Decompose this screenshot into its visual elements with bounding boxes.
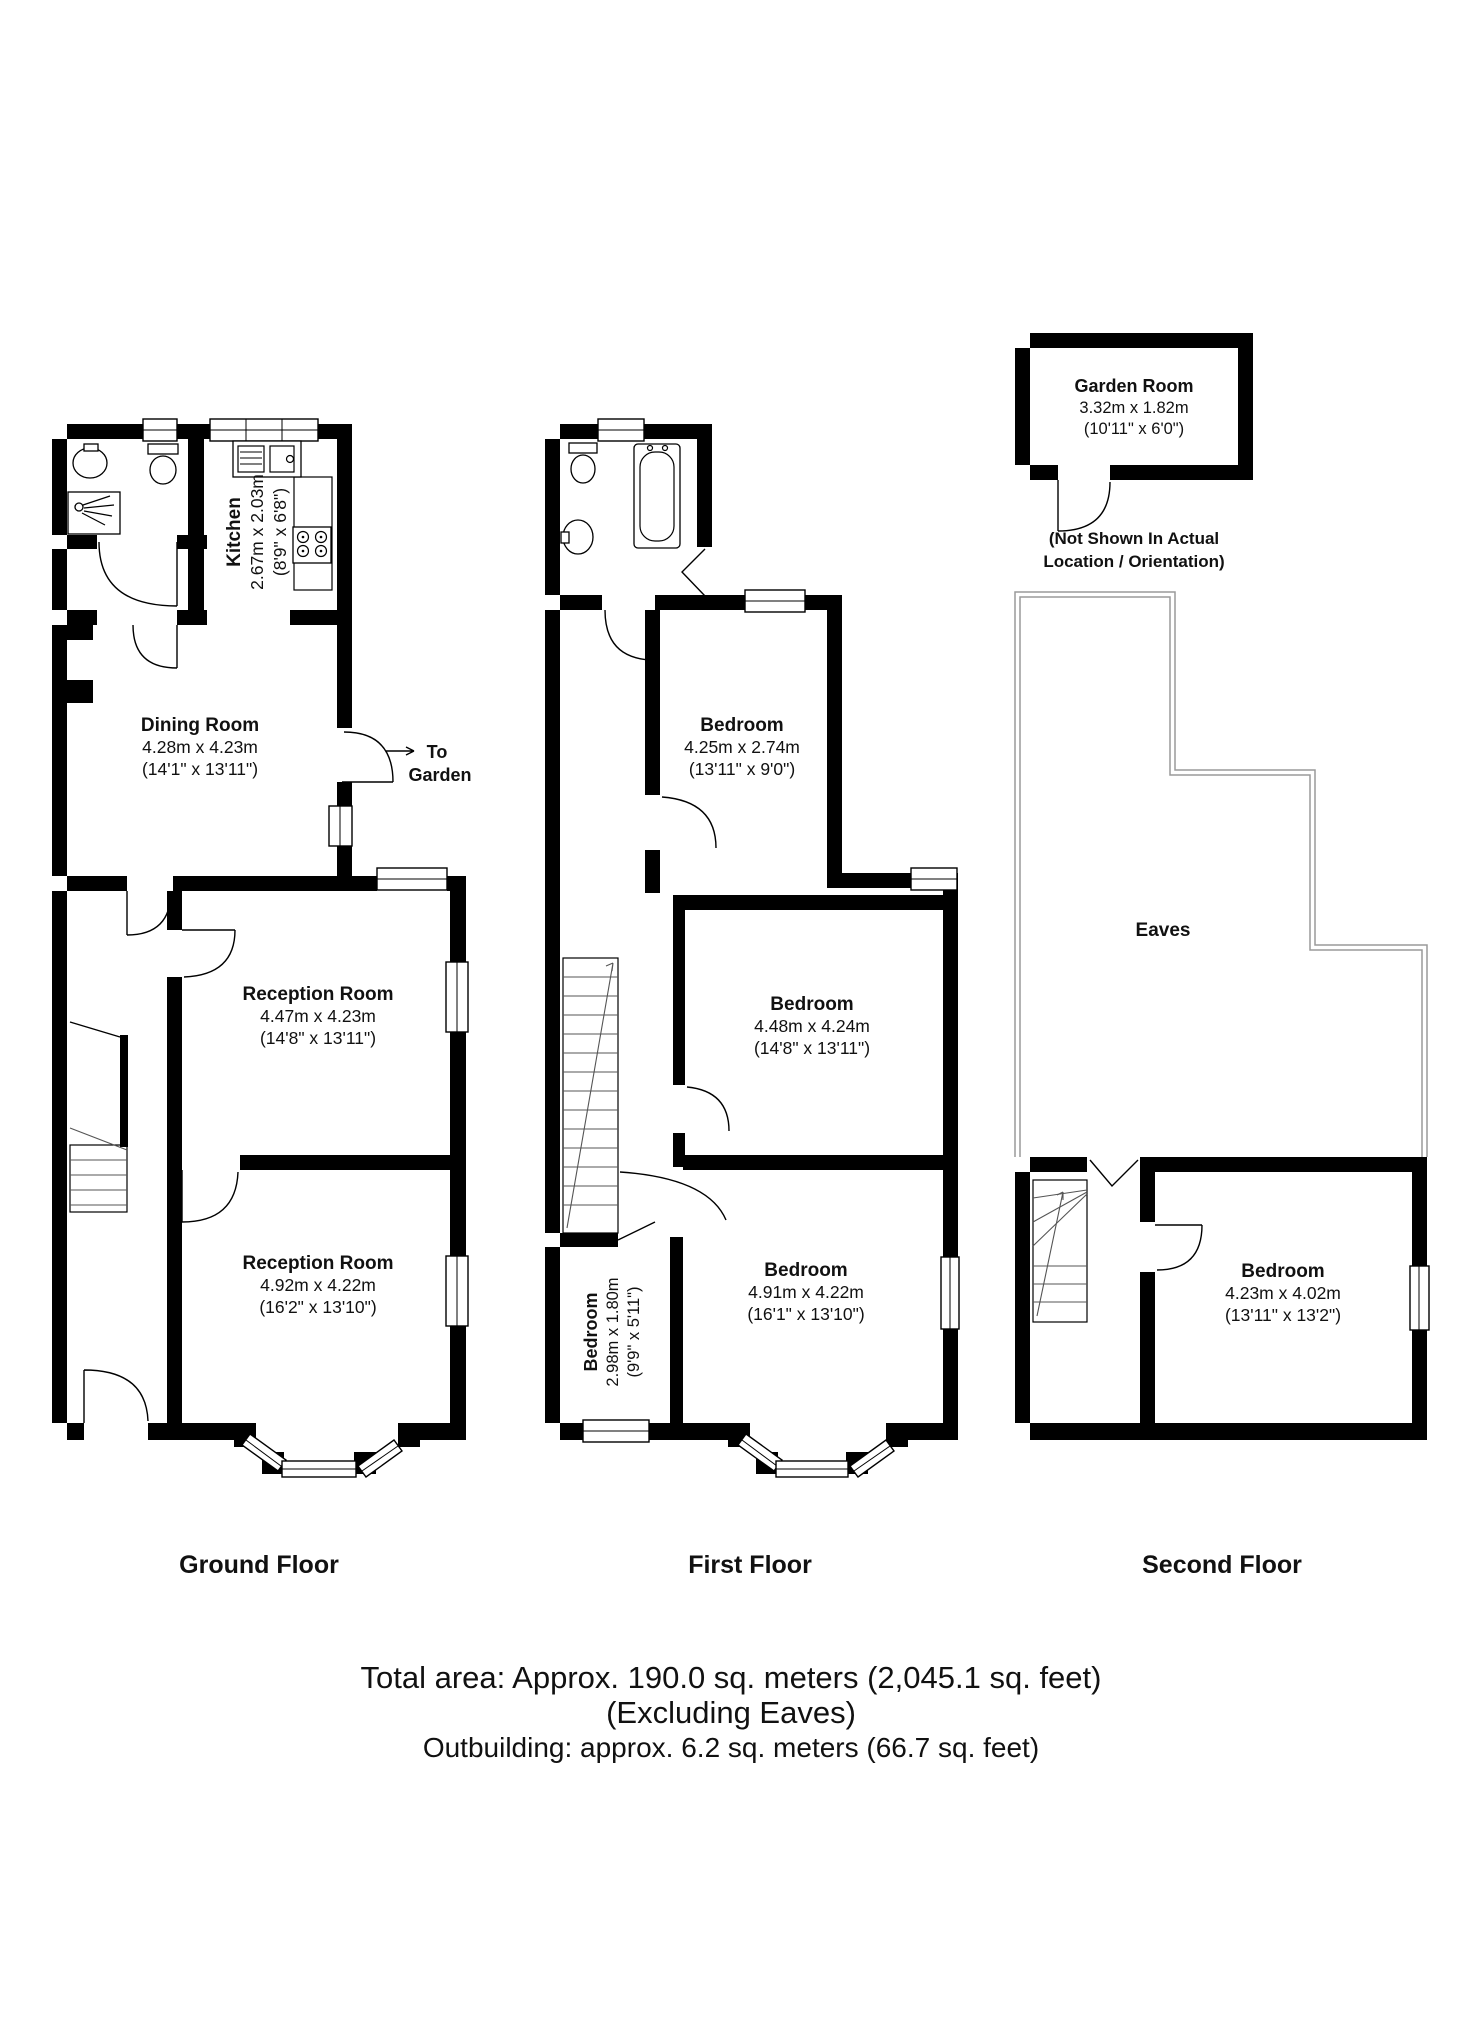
room-metric: 2.98m x 1.80m — [604, 1277, 622, 1386]
second-bedroom-label: Bedroom 4.23m x 4.02m (13'11" x 13'2") — [1225, 1261, 1341, 1325]
eaves-label: Eaves — [1136, 920, 1191, 941]
bedroom-middle-label: Bedroom 4.48m x 4.24m (14'8" x 13'11") — [754, 994, 870, 1058]
room-metric: 4.28m x 4.23m — [142, 737, 258, 757]
room-imperial: (16'2" x 13'10") — [259, 1297, 376, 1317]
room-name: Kitchen — [224, 497, 245, 567]
hob-icon — [293, 527, 331, 563]
bedroom-large-label: Bedroom 4.91m x 4.22m (16'1" x 13'10") — [747, 1260, 864, 1324]
reception-room-2-label: Reception Room 4.92m x 4.22m (16'2" x 13… — [243, 1253, 394, 1317]
eaves-outline-inner — [1020, 597, 1422, 1157]
second-floor: Garden Room 3.32m x 1.82m (10'11" x 6'0"… — [1015, 333, 1429, 1440]
room-name: Reception Room — [243, 1253, 394, 1274]
room-imperial: (14'1" x 13'11") — [142, 759, 258, 779]
eaves-outline — [1015, 592, 1427, 1157]
room-name: Bedroom — [700, 715, 783, 736]
ground-floor: Kitchen 2.67m x 2.03m (8'9" x 6'8") Dini… — [52, 419, 472, 1477]
room-name: Bedroom — [770, 994, 853, 1015]
toilet-icon — [150, 456, 176, 484]
to-garden-line2: Garden — [408, 765, 471, 785]
room-metric: 4.48m x 4.24m — [754, 1016, 870, 1036]
toilet-cistern-icon — [569, 443, 597, 453]
second-floor-title: Second Floor — [1142, 1551, 1302, 1579]
room-imperial: (13'11" x 13'2") — [1225, 1305, 1341, 1325]
note-line1: (Not Shown In Actual — [1049, 529, 1219, 548]
second-floor-walls — [1015, 333, 1427, 1440]
garden-room-label: Garden Room 3.32m x 1.82m (10'11" x 6'0"… — [1074, 376, 1193, 438]
footer: Total area: Approx. 190.0 sq. meters (2,… — [361, 1660, 1102, 1763]
room-metric: 4.91m x 4.22m — [748, 1282, 864, 1302]
room-metric: 4.47m x 4.23m — [260, 1006, 376, 1026]
floorplan-canvas: Kitchen 2.67m x 2.03m (8'9" x 6'8") Dini… — [0, 0, 1463, 2025]
room-name: Garden Room — [1074, 376, 1193, 396]
dining-room-label: Dining Room 4.28m x 4.23m (14'1" x 13'11… — [141, 715, 259, 779]
first-floor-door-arcs — [605, 549, 729, 1240]
first-floor-title: First Floor — [688, 1551, 812, 1579]
ground-floor-stairs — [70, 1128, 127, 1212]
second-floor-stairs — [1033, 1180, 1087, 1322]
room-imperial: (10'11" x 6'0") — [1084, 420, 1184, 438]
room-metric: 4.25m x 2.74m — [684, 737, 800, 757]
total-area-text: Total area: Approx. 190.0 sq. meters (2,… — [361, 1660, 1102, 1695]
shower-head-icon — [75, 503, 83, 511]
bedroom-small-label: Bedroom 2.98m x 1.80m (9'9" x 5'11") — [581, 1277, 643, 1386]
floorplan-page: Kitchen 2.67m x 2.03m (8'9" x 6'8") Dini… — [0, 0, 1463, 2025]
reception-room-1-label: Reception Room 4.47m x 4.23m (14'8" x 13… — [243, 984, 394, 1048]
toilet-cistern-icon — [148, 444, 178, 454]
kitchen-label: Kitchen 2.67m x 2.03m (8'9" x 6'8") — [224, 474, 290, 590]
second-floor-door-arcs — [1058, 480, 1202, 1270]
room-name: Bedroom — [764, 1260, 847, 1281]
to-garden-line1: To — [427, 742, 448, 762]
room-name: Dining Room — [141, 715, 259, 736]
room-metric: 4.23m x 4.02m — [1225, 1283, 1341, 1303]
room-metric: 4.92m x 4.22m — [260, 1275, 376, 1295]
first-floor: Bedroom 4.25m x 2.74m (13'11" x 9'0") Be… — [545, 419, 959, 1477]
room-imperial: (8'9" x 6'8") — [270, 488, 290, 576]
bedroom-top-label: Bedroom 4.25m x 2.74m (13'11" x 9'0") — [684, 715, 800, 779]
room-name: Reception Room — [243, 984, 394, 1005]
room-imperial: (14'8" x 13'11") — [754, 1038, 870, 1058]
toilet-icon — [571, 455, 595, 483]
room-metric: 2.67m x 2.03m — [247, 474, 267, 590]
room-imperial: (13'11" x 9'0") — [689, 759, 795, 779]
excluding-eaves-text: (Excluding Eaves) — [606, 1695, 856, 1730]
room-metric: 3.32m x 1.82m — [1079, 399, 1188, 417]
ground-floor-title: Ground Floor — [179, 1551, 339, 1579]
outbuilding-text: Outbuilding: approx. 6.2 sq. meters (66.… — [423, 1732, 1039, 1763]
room-imperial: (14'8" x 13'11") — [260, 1028, 376, 1048]
first-bathroom-fixtures — [561, 443, 680, 554]
room-imperial: (9'9" x 5'11") — [625, 1286, 643, 1377]
sink-icon — [73, 448, 107, 478]
to-garden-arrow-icon — [386, 747, 414, 755]
room-imperial: (16'1" x 13'10") — [747, 1304, 864, 1324]
tap-icon — [84, 444, 98, 451]
note-line2: Location / Orientation) — [1043, 552, 1224, 571]
to-garden-annotation: To Garden — [386, 742, 472, 785]
room-name: Bedroom — [1241, 1261, 1324, 1282]
tap-icon — [561, 532, 569, 543]
garden-room-note: (Not Shown In Actual Location / Orientat… — [1043, 529, 1224, 571]
first-floor-stairs — [563, 958, 618, 1233]
room-name: Bedroom — [581, 1292, 601, 1371]
ground-bathroom-fixtures — [68, 444, 178, 534]
